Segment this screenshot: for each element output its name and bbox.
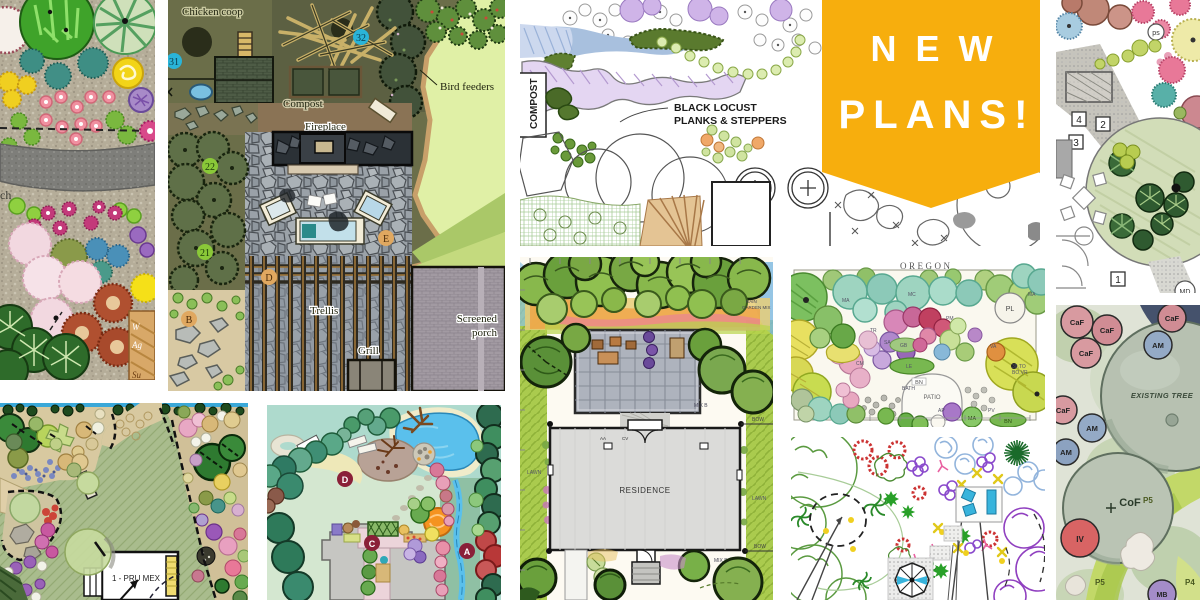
svg-text:ch: ch	[0, 188, 11, 202]
svg-text:Compost: Compost	[283, 98, 323, 110]
svg-text:PLANS!: PLANS!	[839, 93, 1036, 137]
svg-text:RAIN: RAIN	[746, 299, 757, 304]
svg-text:D: D	[265, 273, 272, 284]
svg-text:SA: SA	[884, 340, 891, 346]
svg-text:MA: MA	[1028, 292, 1036, 298]
svg-text:LAWN: LAWN	[527, 470, 542, 476]
svg-text:AM: AM	[1086, 424, 1098, 433]
svg-text:MA: MA	[968, 416, 977, 422]
svg-text:A: A	[464, 547, 471, 557]
svg-text:IV: IV	[1076, 535, 1084, 544]
svg-text:BLACK LOCUST: BLACK LOCUST	[674, 102, 757, 114]
svg-text:OREGON: OREGON	[900, 261, 953, 271]
svg-text:RESIDENCE: RESIDENCE	[619, 486, 670, 495]
svg-text:PATIO: PATIO	[923, 395, 940, 401]
svg-text:22: 22	[205, 162, 215, 173]
svg-text:porch: porch	[472, 327, 498, 339]
svg-text:CV: CV	[622, 436, 628, 441]
svg-text:PLANKS & STEPPERS: PLANKS & STEPPERS	[674, 115, 787, 127]
svg-text:LAWN: LAWN	[752, 496, 767, 502]
svg-text:CaF: CaF	[1079, 349, 1094, 358]
svg-text:CaF: CaF	[1056, 406, 1071, 415]
svg-text:MC: MC	[908, 292, 916, 298]
svg-text:MB: MB	[1157, 592, 1168, 599]
svg-text:CaF: CaF	[1070, 318, 1085, 327]
svg-text:P5: P5	[1143, 496, 1153, 505]
svg-text:PV: PV	[988, 408, 995, 414]
svg-text:2: 2	[1100, 120, 1106, 131]
svg-text:E: E	[383, 234, 389, 245]
svg-text:BOW: BOW	[754, 544, 766, 550]
svg-text:GARDEN MIX: GARDEN MIX	[742, 305, 771, 310]
svg-text:Ag: Ag	[131, 340, 142, 350]
svg-text:B: B	[186, 315, 193, 326]
svg-text:Grill: Grill	[358, 345, 379, 357]
svg-text:CoF: CoF	[1119, 497, 1141, 509]
svg-text:C: C	[369, 539, 376, 549]
svg-text:32: 32	[356, 33, 366, 44]
svg-text:AP: AP	[938, 408, 945, 414]
svg-text:Su: Su	[132, 370, 142, 380]
svg-text:Chicken coop: Chicken coop	[182, 6, 243, 18]
svg-text:COMPOST: COMPOST	[529, 78, 540, 129]
svg-text:Screened: Screened	[457, 313, 498, 325]
svg-text:CaF: CaF	[1165, 314, 1180, 323]
svg-text:BOW: BOW	[752, 417, 764, 423]
svg-text:21: 21	[200, 248, 210, 259]
svg-text:AA: AA	[600, 436, 606, 441]
svg-text:P5: P5	[1095, 578, 1105, 587]
svg-text:ps: ps	[1152, 30, 1160, 37]
svg-text:Trellis: Trellis	[310, 305, 338, 317]
svg-text:BN: BN	[1004, 419, 1012, 425]
svg-text:4: 4	[1076, 115, 1082, 126]
svg-text:LE: LE	[906, 364, 913, 370]
svg-text:BN: BN	[915, 380, 923, 386]
svg-text:CM: CM	[856, 361, 864, 367]
svg-text:AM: AM	[1060, 448, 1072, 457]
svg-text:MA: MA	[842, 298, 850, 304]
svg-text:3: 3	[1073, 138, 1079, 149]
svg-text:Bird feeders: Bird feeders	[440, 81, 494, 93]
svg-text:EXISTING TREE: EXISTING TREE	[1131, 391, 1194, 400]
svg-text:BO,VR: BO,VR	[1012, 370, 1028, 376]
svg-text:MIX B: MIX B	[694, 403, 708, 409]
svg-text:31: 31	[169, 57, 179, 68]
svg-text:BATH: BATH	[902, 386, 915, 392]
svg-text:D: D	[342, 475, 349, 485]
svg-text:GB: GB	[900, 343, 908, 349]
svg-text:PL: PL	[1006, 306, 1015, 313]
svg-text:P4: P4	[1185, 578, 1195, 587]
svg-text:VA: VA	[990, 344, 997, 350]
svg-text:AM: AM	[1152, 341, 1164, 350]
svg-text:CaF: CaF	[1100, 326, 1115, 335]
svg-text:1: 1	[1115, 275, 1121, 286]
svg-text:NEW: NEW	[871, 28, 1012, 69]
